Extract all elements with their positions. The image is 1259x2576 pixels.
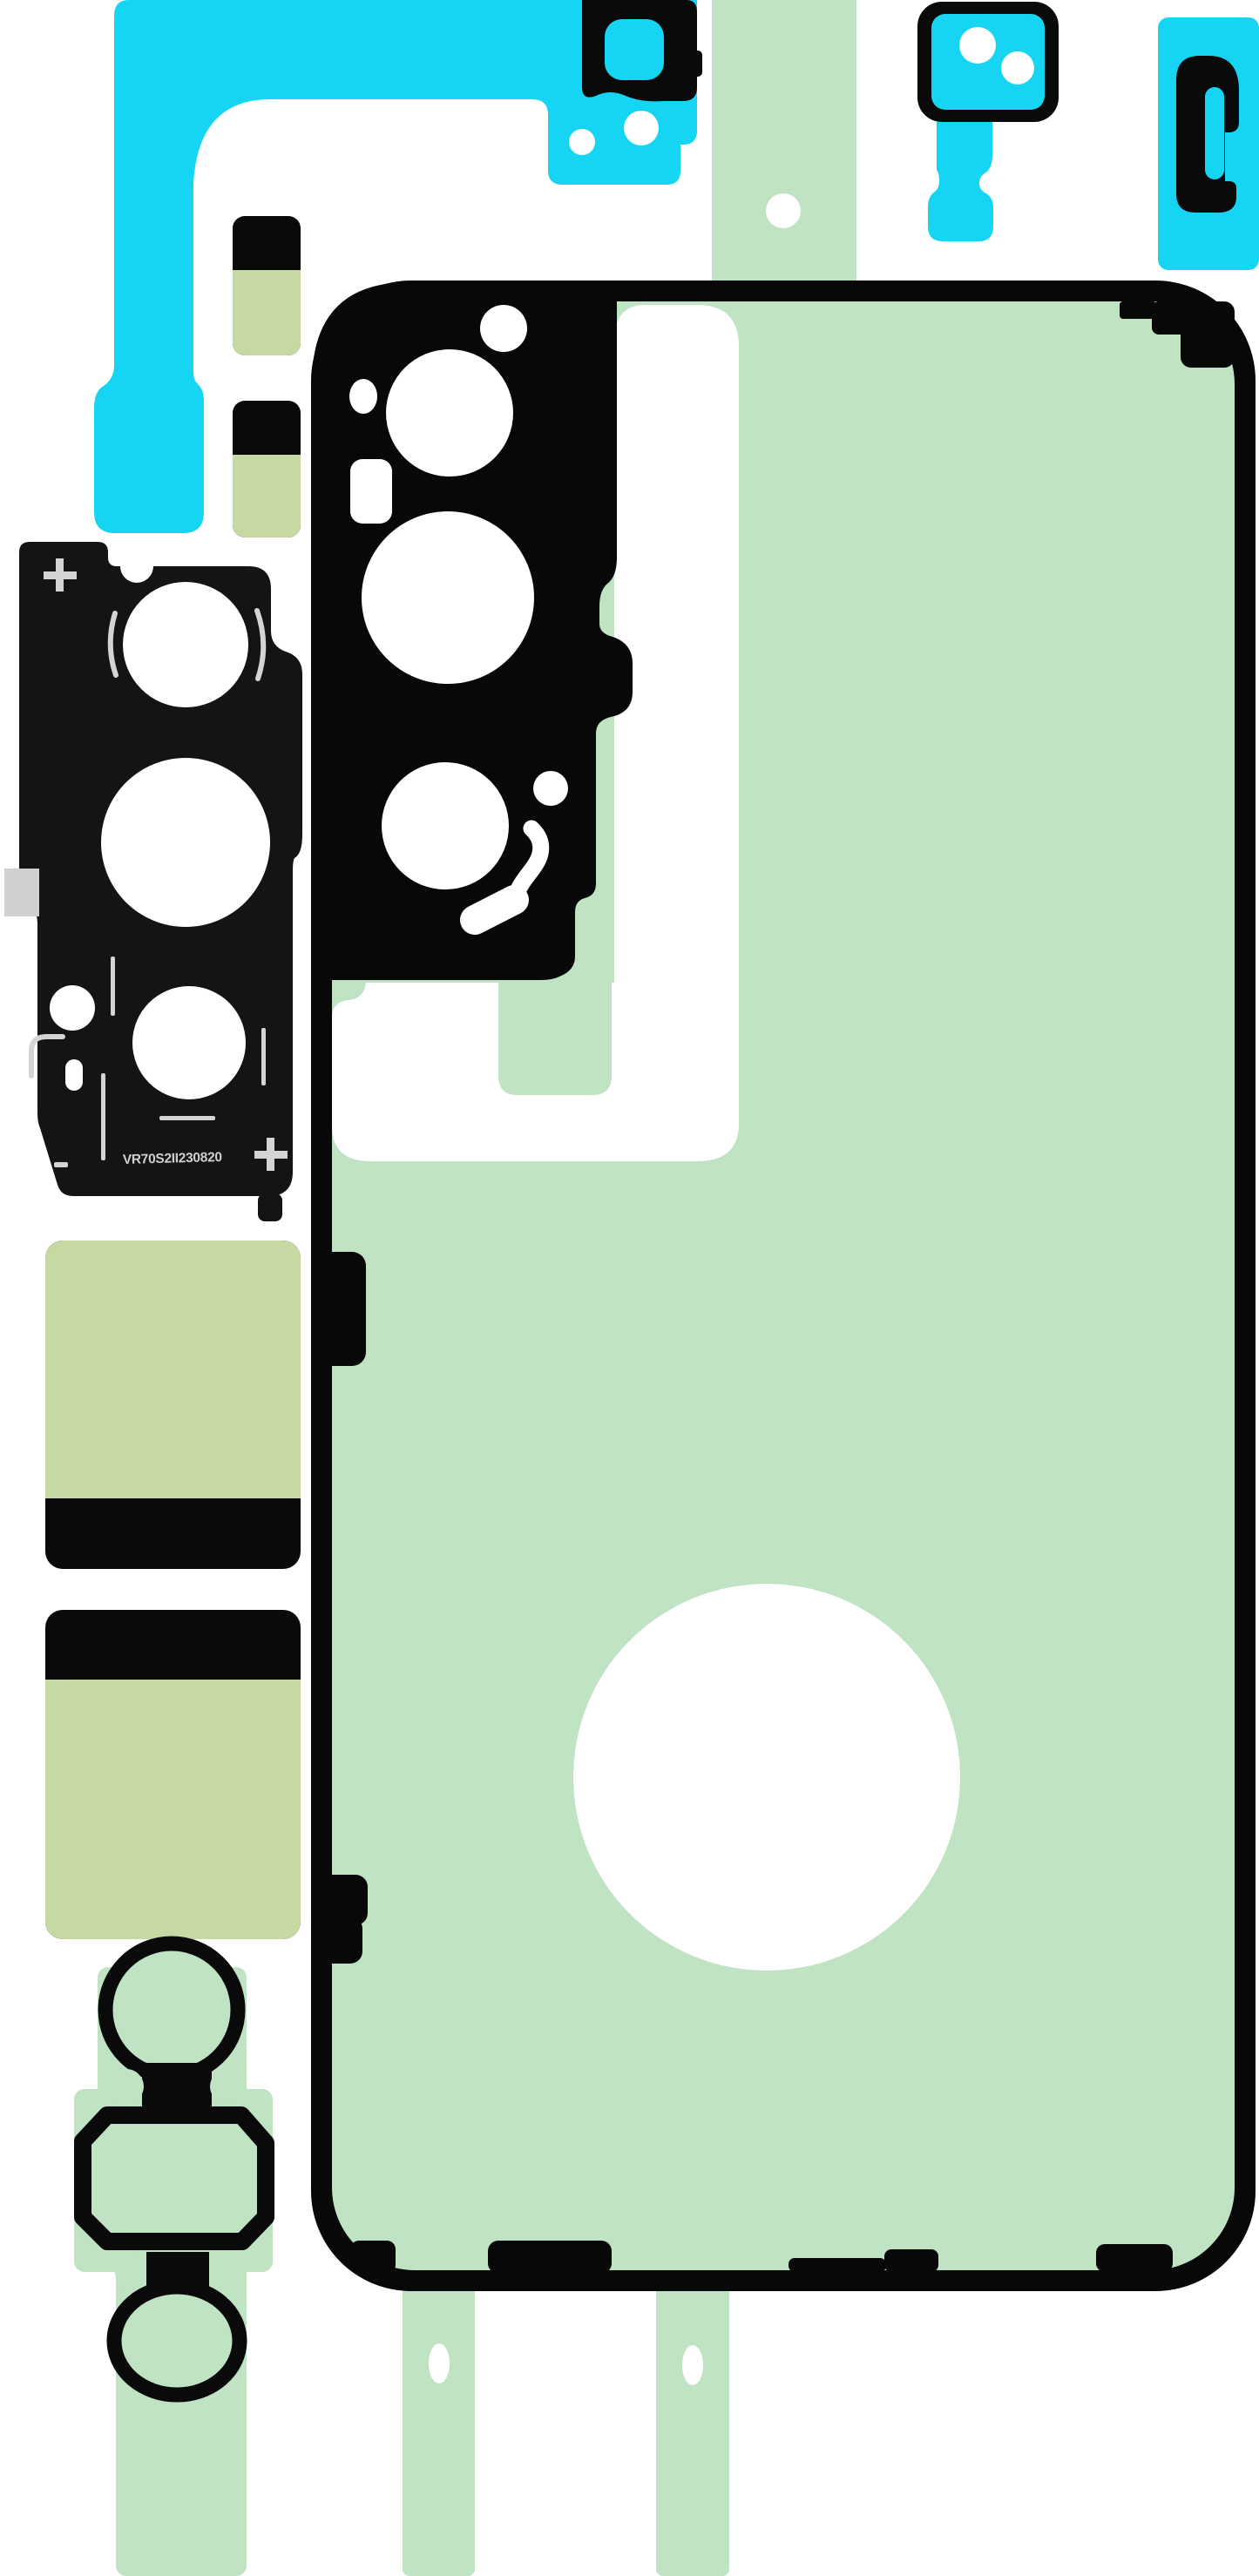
sensor-cutout bbox=[349, 379, 377, 414]
gasket-neck bbox=[142, 2063, 212, 2106]
bottom-border-bump bbox=[884, 2249, 938, 2272]
pill-hole bbox=[65, 1059, 83, 1091]
camera-lens-panel: VR70S2II230820 bbox=[4, 542, 302, 1221]
liner-hole bbox=[682, 2345, 703, 2385]
bottom-border-bump bbox=[1096, 2244, 1173, 2272]
top-liner-strip bbox=[712, 0, 856, 301]
bottom-border-bump bbox=[350, 2241, 396, 2274]
liner-hole bbox=[766, 193, 801, 228]
port-cutout bbox=[350, 459, 392, 524]
gasket-chain bbox=[83, 1944, 266, 2395]
bracket-bump bbox=[692, 51, 702, 77]
liner-hole bbox=[429, 2343, 450, 2383]
serial-number: VR70S2II230820 bbox=[123, 1150, 222, 1167]
lens-hole-middle bbox=[101, 758, 270, 927]
tick-mark bbox=[101, 1073, 105, 1160]
spacer-tab-upper bbox=[233, 216, 301, 355]
wireless-charge-cutout bbox=[573, 1584, 960, 1971]
small-hole bbox=[50, 985, 95, 1031]
lens-cutout-middle bbox=[362, 511, 534, 684]
lens-hole-top bbox=[123, 582, 248, 707]
gasket-ring-bottom bbox=[114, 2287, 240, 2395]
gasket-ring-middle bbox=[83, 2115, 266, 2241]
tick-mark bbox=[159, 1116, 215, 1120]
back-cover-adhesive bbox=[311, 281, 1256, 2291]
corner-step bbox=[1181, 301, 1235, 368]
frame-hole bbox=[959, 27, 996, 64]
minus-mark bbox=[54, 1162, 68, 1167]
adhesive-kit-sheet: VR70S2II230820 bbox=[0, 0, 1259, 2576]
lens-cutout-top bbox=[386, 349, 513, 477]
spacer-tab-lower bbox=[233, 401, 301, 538]
border-notch-upper bbox=[312, 1252, 366, 1366]
tick-mark bbox=[111, 957, 115, 1016]
green-sliver bbox=[582, 884, 612, 984]
spacer-strip-upper bbox=[45, 1241, 301, 1569]
bottom-liner-strip-right bbox=[656, 2278, 729, 2576]
adhesive-kit-photo: VR70S2II230820 bbox=[0, 0, 1259, 2576]
pull-tab-tape bbox=[1158, 17, 1259, 270]
flex-hole bbox=[569, 129, 595, 155]
spacer-strip-lower bbox=[45, 1610, 301, 1939]
edge-tab bbox=[4, 869, 39, 916]
hook-slot bbox=[1205, 87, 1224, 179]
bracket-window bbox=[605, 19, 664, 80]
bottom-liner-strip-left bbox=[403, 2278, 475, 2576]
flash-cutout bbox=[480, 305, 527, 352]
corner-step bbox=[1120, 301, 1156, 319]
lens-hole-bottom bbox=[132, 986, 246, 1099]
green-tab bbox=[498, 977, 612, 1095]
panel-foot bbox=[258, 1193, 282, 1221]
frame-hole bbox=[1001, 51, 1034, 85]
small-sensor-cutout bbox=[533, 771, 568, 806]
frame-stem bbox=[928, 122, 993, 241]
inner-cutout-band bbox=[614, 305, 739, 1089]
bottom-border-bump bbox=[488, 2241, 612, 2274]
bottom-border-bump bbox=[789, 2258, 886, 2272]
lens-cutout-bottom bbox=[382, 762, 509, 889]
flex-hole bbox=[624, 111, 659, 145]
gasket-ring-top bbox=[105, 1944, 238, 2076]
blob-cutout bbox=[475, 900, 514, 920]
camera-frame-tape bbox=[917, 2, 1059, 241]
tick-mark bbox=[261, 1028, 266, 1085]
